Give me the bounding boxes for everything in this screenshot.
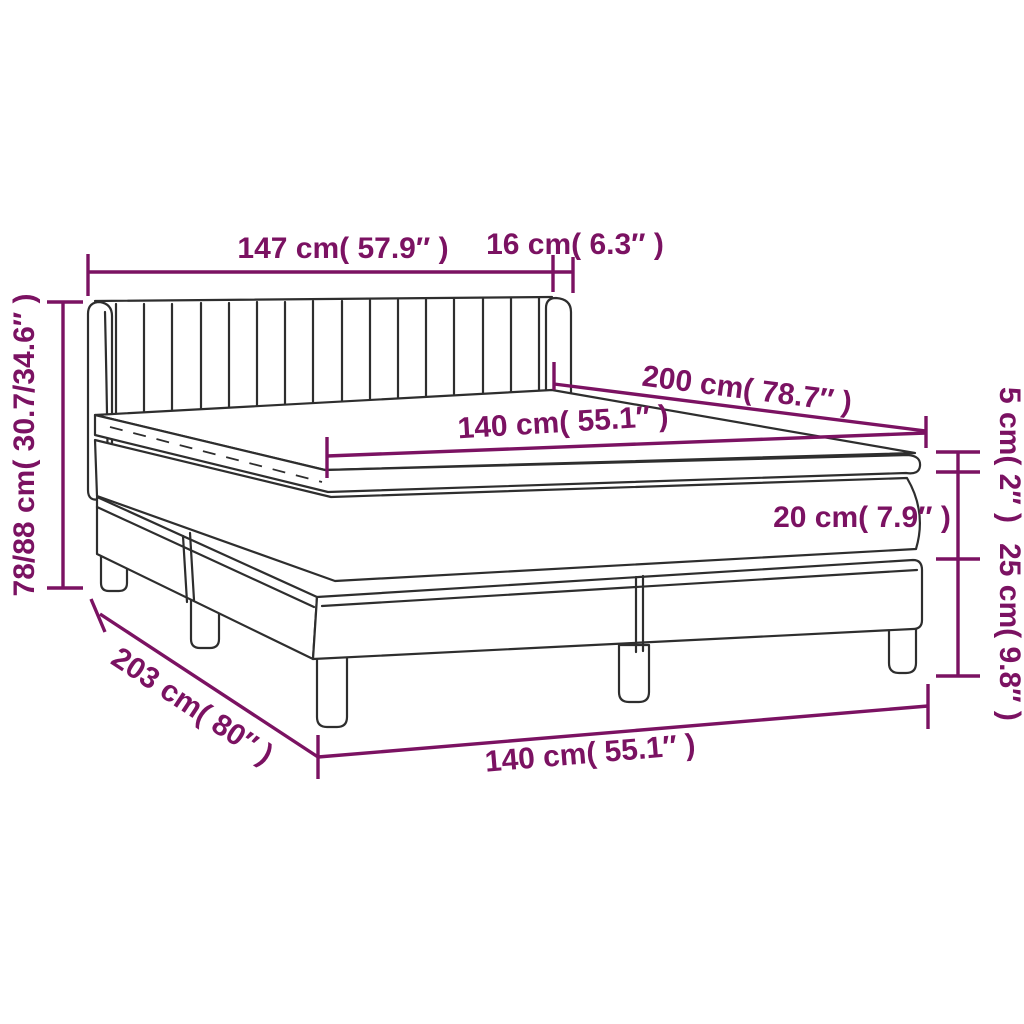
dim-label-headboard-wing-depth: 16 cm( 6.3″ ) xyxy=(486,228,664,261)
dim-label-headboard-width: 147 cm( 57.9″ ) xyxy=(237,232,448,265)
dim-label-overall-length: 203 cm( 80″ ) xyxy=(105,641,278,771)
dim-label-base-height: 25 cm( 9.8″ ) xyxy=(993,543,1024,721)
dim-overall-height: 78/88 cm( 30.7/34.6″ ) xyxy=(8,294,83,597)
bed-leg xyxy=(619,645,649,702)
dim-label-overall-height: 78/88 cm( 30.7/34.6″ ) xyxy=(8,294,41,597)
dim-headboard-width: 147 cm( 57.9″ ) xyxy=(88,232,553,296)
dim-headboard-wing-depth: 16 cm( 6.3″ ) xyxy=(486,228,664,293)
bed-dimension-svg: 147 cm( 57.9″ ) 16 cm( 6.3″ ) 78/88 cm( … xyxy=(0,0,1024,1024)
dim-label-topper-thickness: 5 cm( 2″ ) xyxy=(993,387,1024,523)
bed-leg xyxy=(889,625,916,673)
dimension-diagram: 147 cm( 57.9″ ) 16 cm( 6.3″ ) 78/88 cm( … xyxy=(0,0,1024,1024)
bed-leg xyxy=(317,655,347,727)
dim-label-mattress-thickness: 20 cm( 7.9″ ) xyxy=(773,501,951,534)
